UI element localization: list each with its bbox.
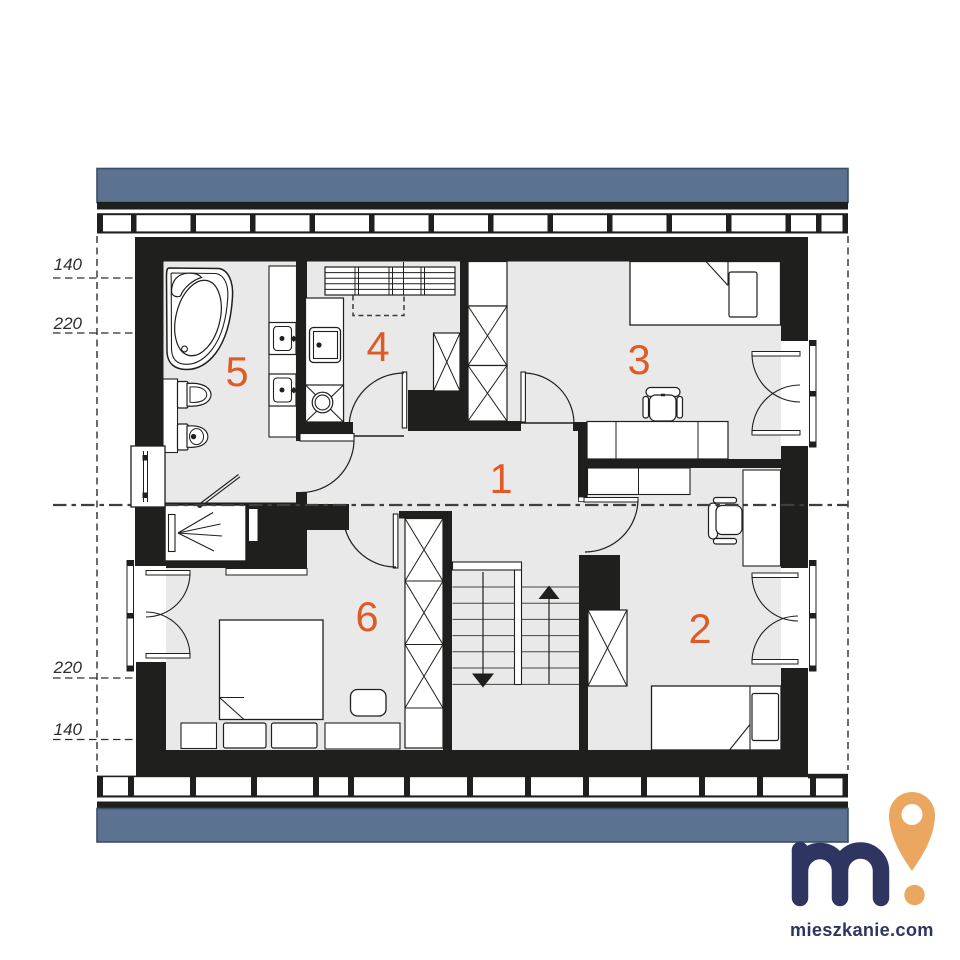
svg-text:1: 1 xyxy=(489,455,512,502)
svg-text:4: 4 xyxy=(366,323,389,370)
svg-text:2: 2 xyxy=(688,605,711,652)
svg-text:220: 220 xyxy=(53,658,83,677)
svg-text:140: 140 xyxy=(54,720,83,739)
svg-text:3: 3 xyxy=(627,336,650,383)
svg-text:mieszkanie.com: mieszkanie.com xyxy=(790,920,934,940)
svg-text:140: 140 xyxy=(54,255,83,274)
svg-text:6: 6 xyxy=(355,593,378,640)
svg-text:5: 5 xyxy=(225,348,248,395)
svg-text:220: 220 xyxy=(53,314,83,333)
